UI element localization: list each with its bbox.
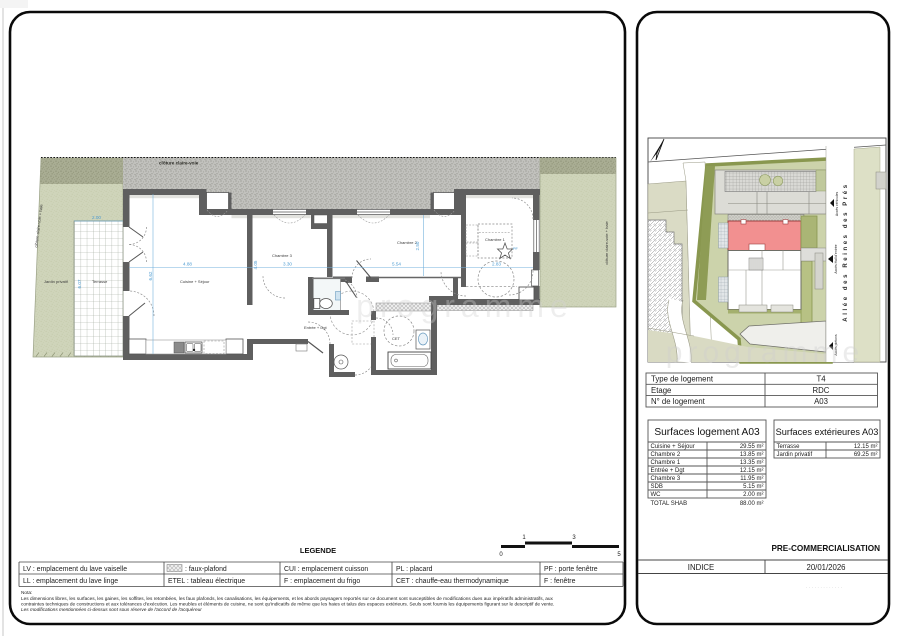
svg-text:2.00: 2.00 [92,215,101,220]
svg-text:Allée des Reines des Prés: Allée des Reines des Prés [843,182,849,321]
svg-text:Les modifications mentionnées: Les modifications mentionnées ci-dessus … [21,607,202,613]
svg-text:INDICE: INDICE [688,563,714,572]
svg-text:Les dimensions libres, les sur: Les dimensions libres, les surfaces, les… [21,596,554,602]
svg-text:: faux-plafond: : faux-plafond [185,566,227,573]
svg-text:Type de logement: Type de logement [651,375,714,384]
svg-text:6.62: 6.62 [148,271,153,280]
svg-text:TOTAL SHAB: TOTAL SHAB [651,501,688,507]
svg-text:PF : porte fenêtre: PF : porte fenêtre [544,566,598,573]
svg-text:RDC: RDC [813,386,830,395]
svg-text:clôture claire-voie + haie: clôture claire-voie + haie [604,220,609,264]
svg-text:Surfaces logement A03: Surfaces logement A03 [654,427,760,438]
svg-text:88.00 m²: 88.00 m² [740,501,764,507]
svg-text:Chambre 3: Chambre 3 [651,476,681,482]
svg-text:LEGENDE: LEGENDE [300,546,336,555]
svg-text:T4: T4 [816,375,826,384]
svg-text:Accès Hall d'entrée: Accès Hall d'entrée [834,244,838,273]
svg-text:Jardin privatif: Jardin privatif [777,452,813,458]
svg-text:CUI : emplacement cuisson: CUI : emplacement cuisson [284,566,368,573]
svg-text:LL : emplacement du lave linge: LL : emplacement du lave linge [23,578,118,585]
svg-text:13.35 m²: 13.35 m² [740,460,764,466]
svg-text:contraintes techniques de cons: contraintes techniques de constructions … [21,602,554,608]
svg-text:2.00 m²: 2.00 m² [743,492,763,498]
svg-text:Entrée + Dgt: Entrée + Dgt [651,468,685,474]
svg-text:5.15 m²: 5.15 m² [743,484,763,490]
svg-text:CET : chauffe-eau thermodynami: CET : chauffe-eau thermodynamique [396,578,509,585]
svg-text:69.25 m²: 69.25 m² [854,452,878,458]
svg-text:13.85 m²: 13.85 m² [740,452,764,458]
svg-text:programme: programme [356,288,574,324]
svg-text:29.55 m²: 29.55 m² [740,444,764,450]
svg-text:F : emplacement du frigo: F : emplacement du frigo [284,578,360,585]
svg-text:3.30: 3.30 [283,262,292,267]
svg-text:4.88: 4.88 [183,262,192,267]
svg-text:Jardin privatif: Jardin privatif [44,279,69,284]
svg-text:5.54: 5.54 [392,262,401,267]
svg-text:Entrée + Dgt: Entrée + Dgt [304,325,327,330]
svg-text:N° de logement: N° de logement [651,397,706,406]
svg-text:6.07: 6.07 [77,279,82,288]
svg-text:Chambre 1: Chambre 1 [651,460,681,466]
svg-text:PF: PF [513,247,519,251]
svg-text:Chambre 3: Chambre 3 [272,253,293,258]
svg-text:WC: WC [651,492,662,498]
svg-text:ETEL : tableau électrique: ETEL : tableau électrique [168,578,245,585]
svg-text:SDB: SDB [651,484,663,490]
svg-text:Etage: Etage [651,386,671,395]
svg-text:12.15 m²: 12.15 m² [740,468,764,474]
svg-text:PL : placard: PL : placard [396,566,433,573]
svg-text:4.05: 4.05 [253,260,258,269]
svg-text:.............: ............. [806,584,844,590]
svg-text:LV : emplacement du lave vaise: LV : emplacement du lave vaiselle [23,566,127,573]
svg-text:2.83: 2.83 [492,262,501,267]
svg-text:2.50: 2.50 [415,241,420,250]
svg-text:F : fenêtre: F : fenêtre [544,578,576,585]
svg-text:Surfaces extérieures A03: Surfaces extérieures A03 [776,427,879,437]
svg-text:Chambre 1: Chambre 1 [485,237,506,242]
svg-text:programme: programme [666,336,864,369]
svg-text:PRE-COMMERCIALISATION: PRE-COMMERCIALISATION [771,544,880,553]
svg-text:Terrasse: Terrasse [777,444,801,450]
svg-text:Cuisine + Séjour: Cuisine + Séjour [651,444,695,450]
svg-text:Chambre 2: Chambre 2 [651,452,681,458]
svg-text:12.15 m²: 12.15 m² [854,444,878,450]
svg-text:Cuisine + Séjour: Cuisine + Séjour [180,279,210,284]
svg-text:Nota:: Nota: [21,590,32,596]
svg-text:A03: A03 [814,397,828,406]
svg-text:20/01/2026: 20/01/2026 [806,563,845,572]
svg-text:Accès véhicules: Accès véhicules [835,192,839,217]
svg-text:11.95 m²: 11.95 m² [740,476,763,482]
svg-text:clôture claire-voie: clôture claire-voie [159,161,199,166]
svg-text:CET: CET [392,336,401,341]
svg-text:Terrasse: Terrasse [92,279,108,284]
